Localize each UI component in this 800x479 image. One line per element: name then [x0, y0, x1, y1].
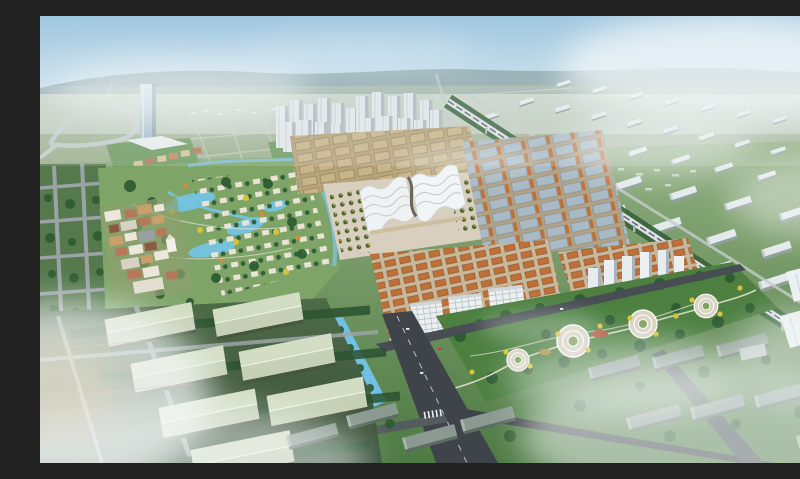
aerial-city-masterplan-render [40, 16, 800, 463]
circular-plaza [694, 294, 718, 318]
render-canvas [40, 16, 800, 463]
town-center-cluster [99, 195, 192, 303]
circular-plaza [629, 310, 657, 338]
